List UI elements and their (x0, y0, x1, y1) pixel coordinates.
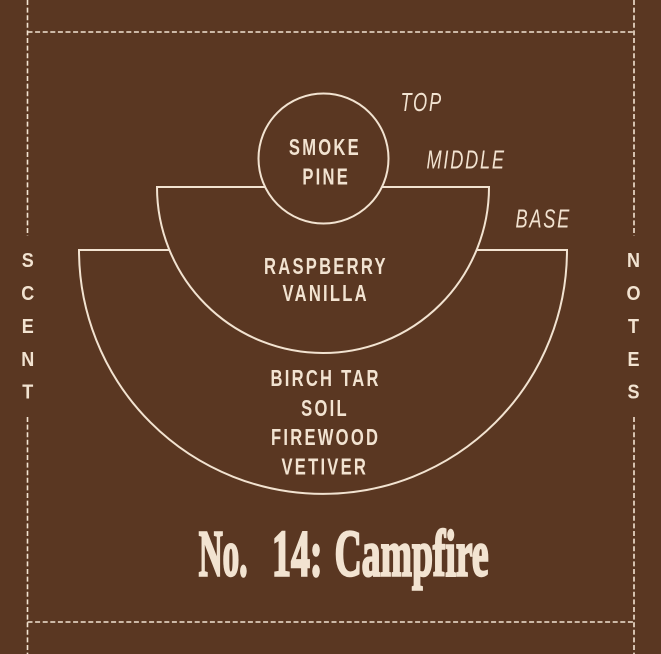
svg-text:SMOKE: SMOKE (289, 135, 361, 160)
svg-text:E: E (22, 316, 34, 338)
svg-text:PINE: PINE (302, 165, 350, 190)
svg-text:Campfire: Campfire (335, 517, 489, 591)
svg-text:MIDDLE: MIDDLE (427, 145, 506, 174)
svg-text:RASPBERRY: RASPBERRY (264, 254, 388, 279)
svg-text:S: S (22, 250, 34, 272)
svg-text:N: N (627, 250, 640, 272)
svg-text:TOP: TOP (401, 88, 443, 117)
svg-text:T: T (628, 316, 639, 338)
svg-text:SOIL: SOIL (301, 396, 349, 421)
svg-text:BASE: BASE (516, 204, 572, 233)
svg-text:O: O (627, 283, 641, 305)
svg-text:VETIVER: VETIVER (281, 455, 368, 480)
svg-text:BIRCH TAR: BIRCH TAR (271, 366, 381, 391)
svg-text:14:: 14: (272, 517, 322, 591)
svg-text:T: T (22, 382, 33, 404)
svg-text:E: E (627, 349, 639, 371)
svg-text:No.: No. (199, 517, 248, 590)
svg-text:FIREWOOD: FIREWOOD (271, 426, 380, 451)
svg-text:VANILLA: VANILLA (283, 281, 369, 306)
svg-text:N: N (21, 349, 34, 371)
svg-text:S: S (627, 382, 639, 404)
svg-text:C: C (21, 283, 34, 305)
